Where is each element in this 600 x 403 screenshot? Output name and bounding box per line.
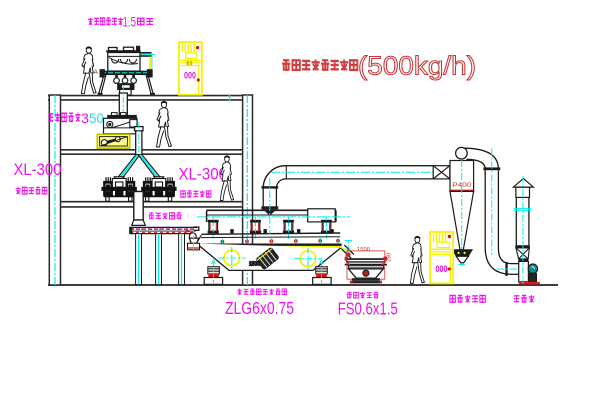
svg-text:000: 000 <box>436 264 448 274</box>
svg-text:A: A <box>94 69 99 76</box>
svg-text:50: 50 <box>89 110 104 126</box>
svg-text:XL-300: XL-300 <box>14 160 62 179</box>
svg-text:FS0.6x1.5: FS0.6x1.5 <box>338 299 398 319</box>
svg-text:1.5: 1.5 <box>123 14 137 30</box>
svg-text:XL-300: XL-300 <box>179 165 228 184</box>
svg-text:250: 250 <box>387 253 393 262</box>
svg-text:1500: 1500 <box>249 262 260 268</box>
svg-text:(500kg/h): (500kg/h) <box>358 51 476 81</box>
svg-text:1500: 1500 <box>357 247 370 253</box>
svg-text:000: 000 <box>184 71 196 81</box>
svg-text:3: 3 <box>81 110 89 126</box>
svg-text:ZLG6x0.75: ZLG6x0.75 <box>225 298 294 318</box>
